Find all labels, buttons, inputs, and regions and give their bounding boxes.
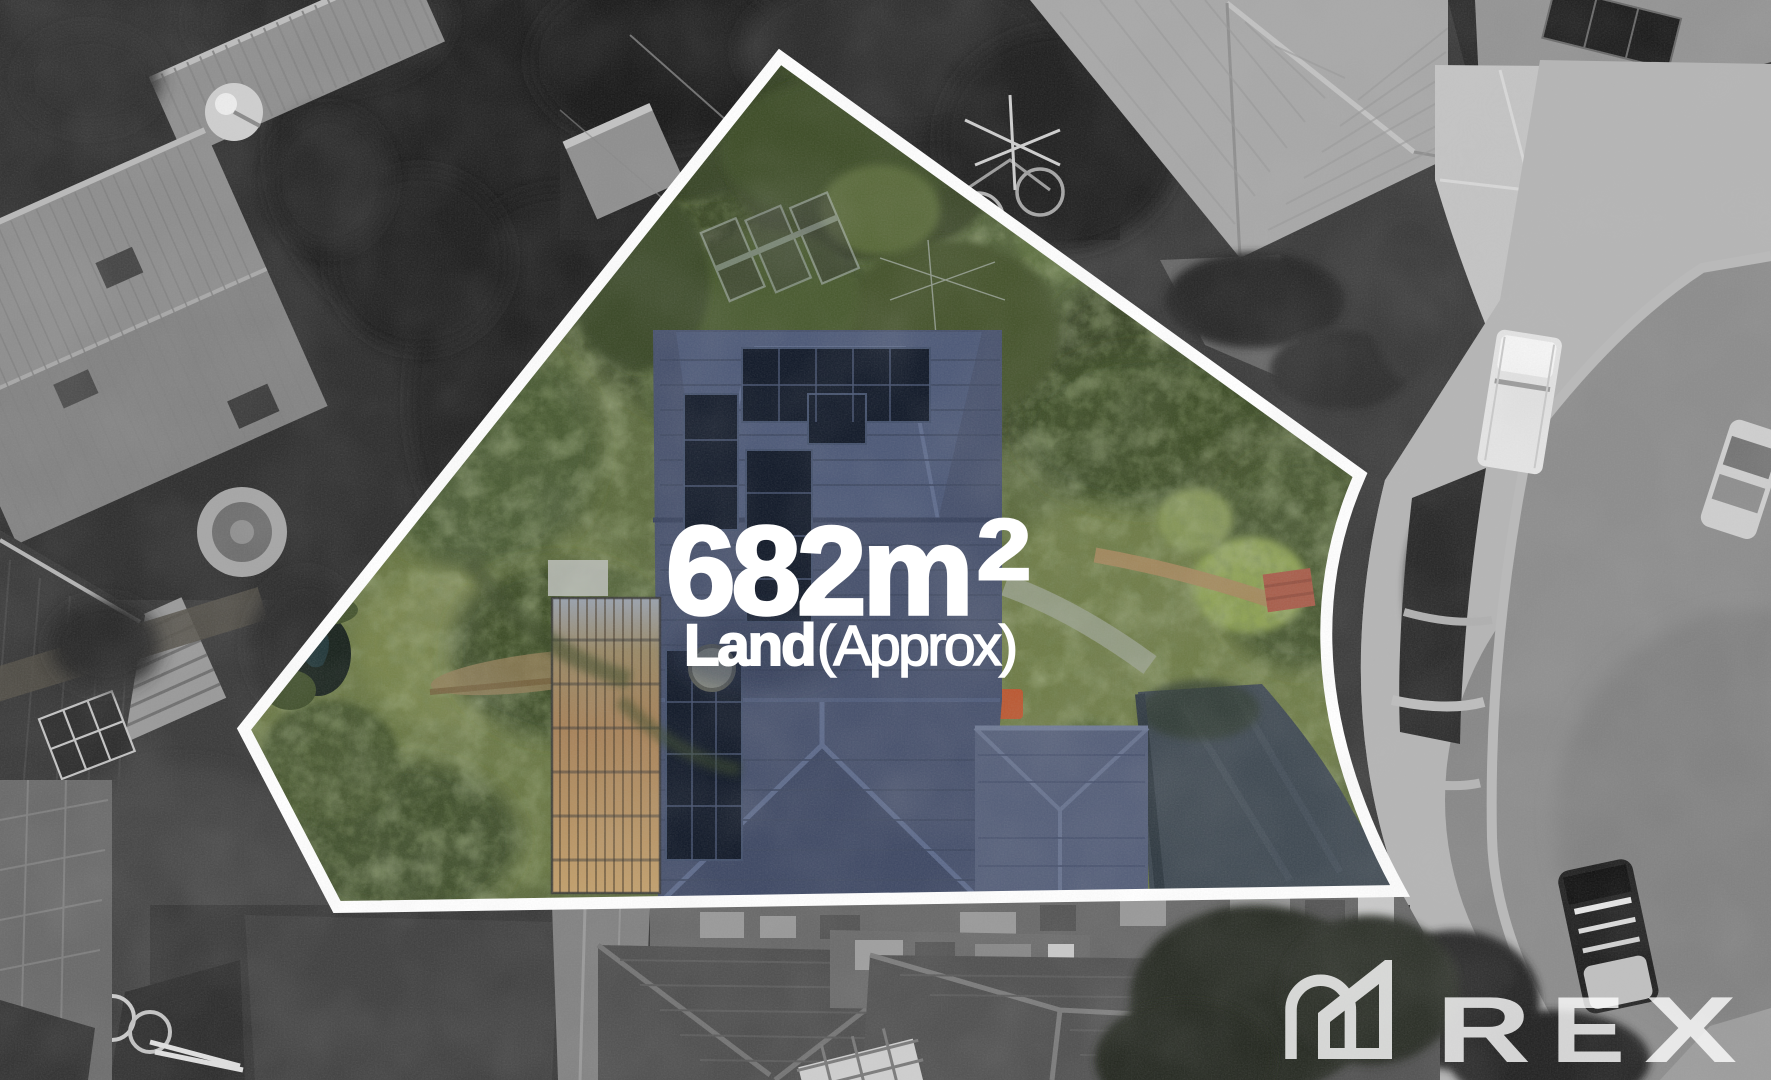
svg-text:2: 2 <box>977 503 1031 598</box>
svg-text:E: E <box>1551 977 1625 1080</box>
svg-text:Land: Land <box>684 613 815 678</box>
svg-text:(Approx): (Approx) <box>817 614 1016 678</box>
svg-text:R: R <box>1436 977 1531 1080</box>
svg-text:X: X <box>1644 977 1737 1080</box>
